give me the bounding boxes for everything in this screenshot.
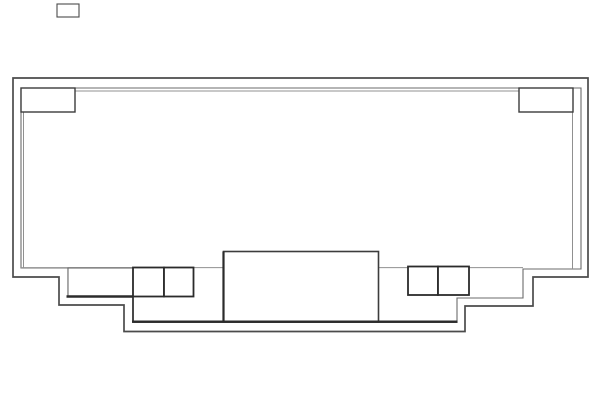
technical-drawing [0, 0, 602, 418]
drawing-canvas [0, 0, 602, 418]
right-box-pair-cell-a [408, 267, 438, 296]
left-step-cell [68, 268, 133, 297]
top-left-corner-box [21, 88, 75, 112]
top-right-corner-box [519, 88, 573, 112]
center-console-box [224, 252, 379, 323]
right-box-pair-cell-b [438, 267, 469, 296]
left-box-pair-cell-a [133, 268, 164, 297]
left-box-pair-cell-b [164, 268, 194, 297]
detached-top-box [57, 4, 79, 17]
